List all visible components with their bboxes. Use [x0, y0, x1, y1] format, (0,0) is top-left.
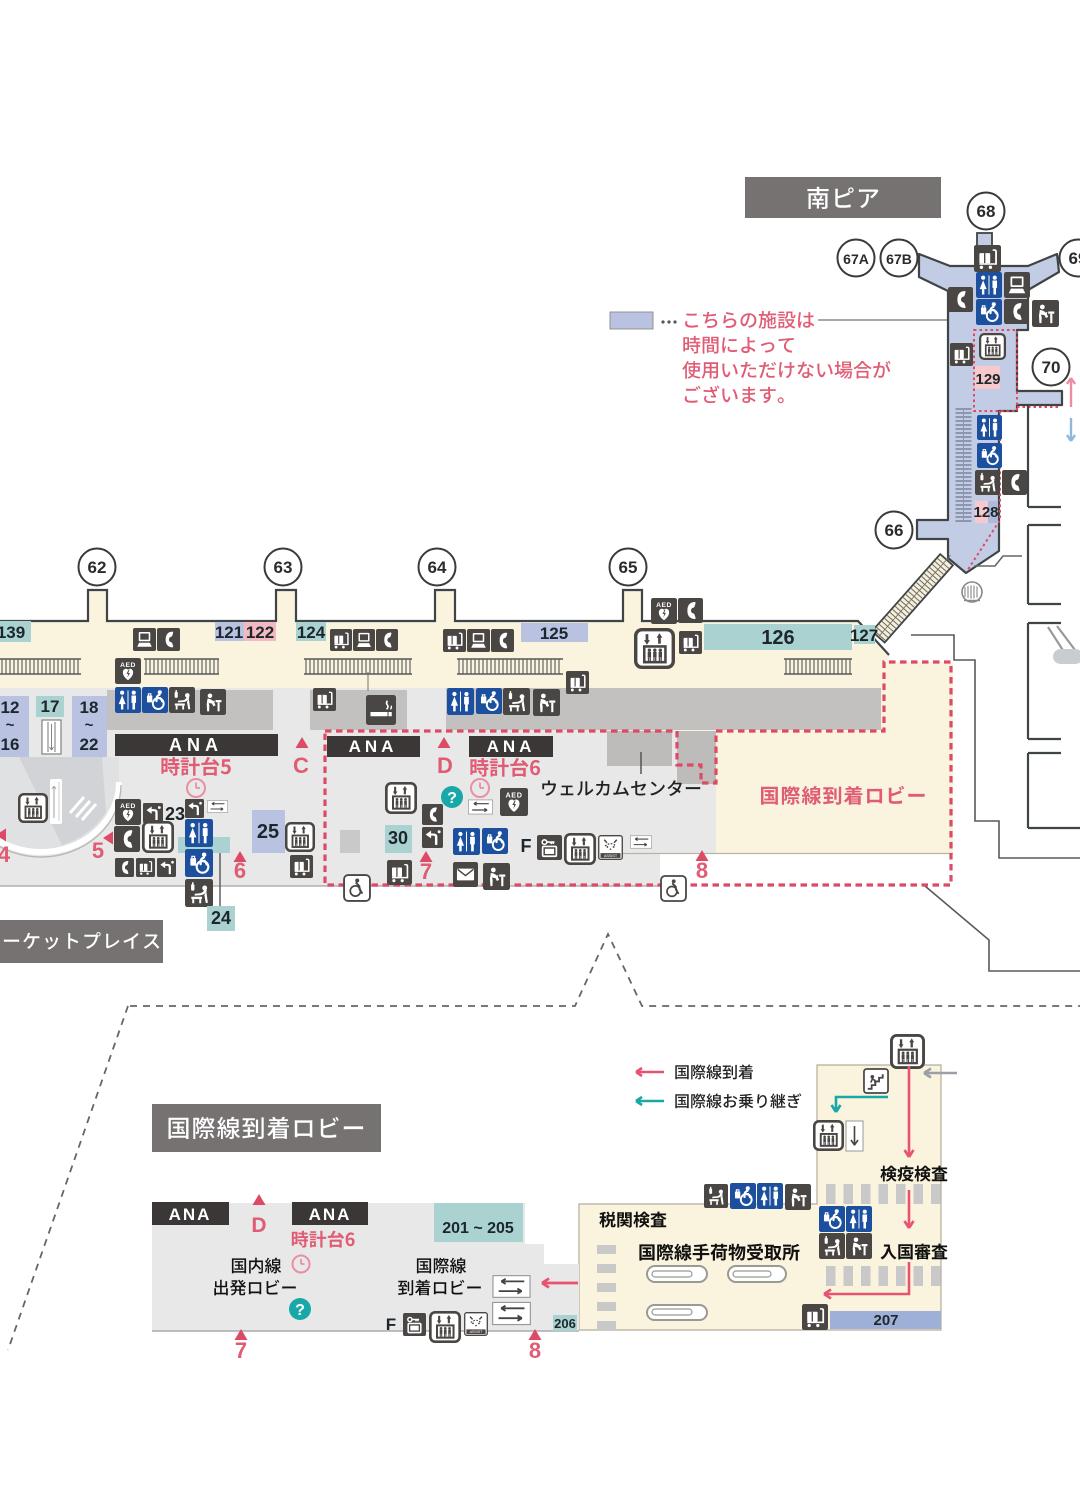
svg-text:F: F — [386, 1315, 396, 1334]
svg-text:16: 16 — [1, 735, 20, 754]
svg-text:122: 122 — [246, 623, 274, 642]
svg-text:129: 129 — [975, 371, 1000, 388]
svg-text:6: 6 — [234, 858, 246, 883]
svg-text:18: 18 — [80, 698, 99, 717]
svg-text:ANA: ANA — [169, 735, 223, 755]
svg-text:?: ? — [447, 790, 457, 807]
svg-text:127: 127 — [850, 626, 878, 645]
svg-text:63: 63 — [274, 558, 293, 577]
svg-text:4: 4 — [0, 842, 11, 867]
svg-text:201 ~ 205: 201 ~ 205 — [442, 1220, 514, 1237]
svg-text:8: 8 — [696, 858, 708, 883]
svg-text:62: 62 — [88, 558, 107, 577]
svg-text:7: 7 — [235, 1338, 247, 1363]
svg-text:~: ~ — [85, 717, 94, 734]
svg-text:67A: 67A — [843, 251, 869, 267]
svg-text:206: 206 — [554, 1316, 576, 1331]
svg-text:24: 24 — [211, 908, 231, 928]
svg-text:66: 66 — [885, 521, 904, 540]
svg-text:7: 7 — [420, 859, 432, 884]
svg-text:F: F — [521, 836, 532, 856]
svg-text:D: D — [251, 1214, 266, 1237]
svg-text:5: 5 — [92, 838, 104, 863]
svg-text:ANA: ANA — [169, 1205, 212, 1224]
svg-text:23: 23 — [165, 804, 185, 824]
svg-text:~: ~ — [6, 717, 15, 734]
svg-text:D: D — [437, 753, 453, 778]
svg-text:128: 128 — [973, 504, 998, 521]
svg-text:68: 68 — [977, 202, 996, 221]
svg-text:139: 139 — [0, 623, 25, 642]
svg-text:8: 8 — [529, 1338, 541, 1363]
svg-text:ANA: ANA — [487, 737, 536, 756]
svg-text:C: C — [293, 753, 309, 778]
svg-text:207: 207 — [873, 1312, 898, 1329]
svg-text:22: 22 — [80, 735, 99, 754]
svg-text:17: 17 — [41, 697, 60, 716]
svg-text:64: 64 — [428, 558, 447, 577]
svg-text:25: 25 — [257, 821, 279, 843]
svg-text:70: 70 — [1042, 358, 1061, 377]
svg-text:?: ? — [295, 1302, 305, 1319]
svg-text:12: 12 — [1, 698, 20, 717]
svg-text:30: 30 — [388, 828, 408, 848]
svg-text:121: 121 — [215, 623, 243, 642]
svg-text:65: 65 — [619, 558, 638, 577]
svg-text:69: 69 — [1069, 249, 1080, 268]
svg-text:125: 125 — [540, 624, 568, 643]
svg-text:124: 124 — [297, 623, 326, 642]
svg-text:ANA: ANA — [309, 1205, 352, 1224]
svg-text:67B: 67B — [886, 251, 912, 267]
svg-text:ANA: ANA — [349, 737, 398, 756]
svg-text:126: 126 — [761, 627, 794, 649]
